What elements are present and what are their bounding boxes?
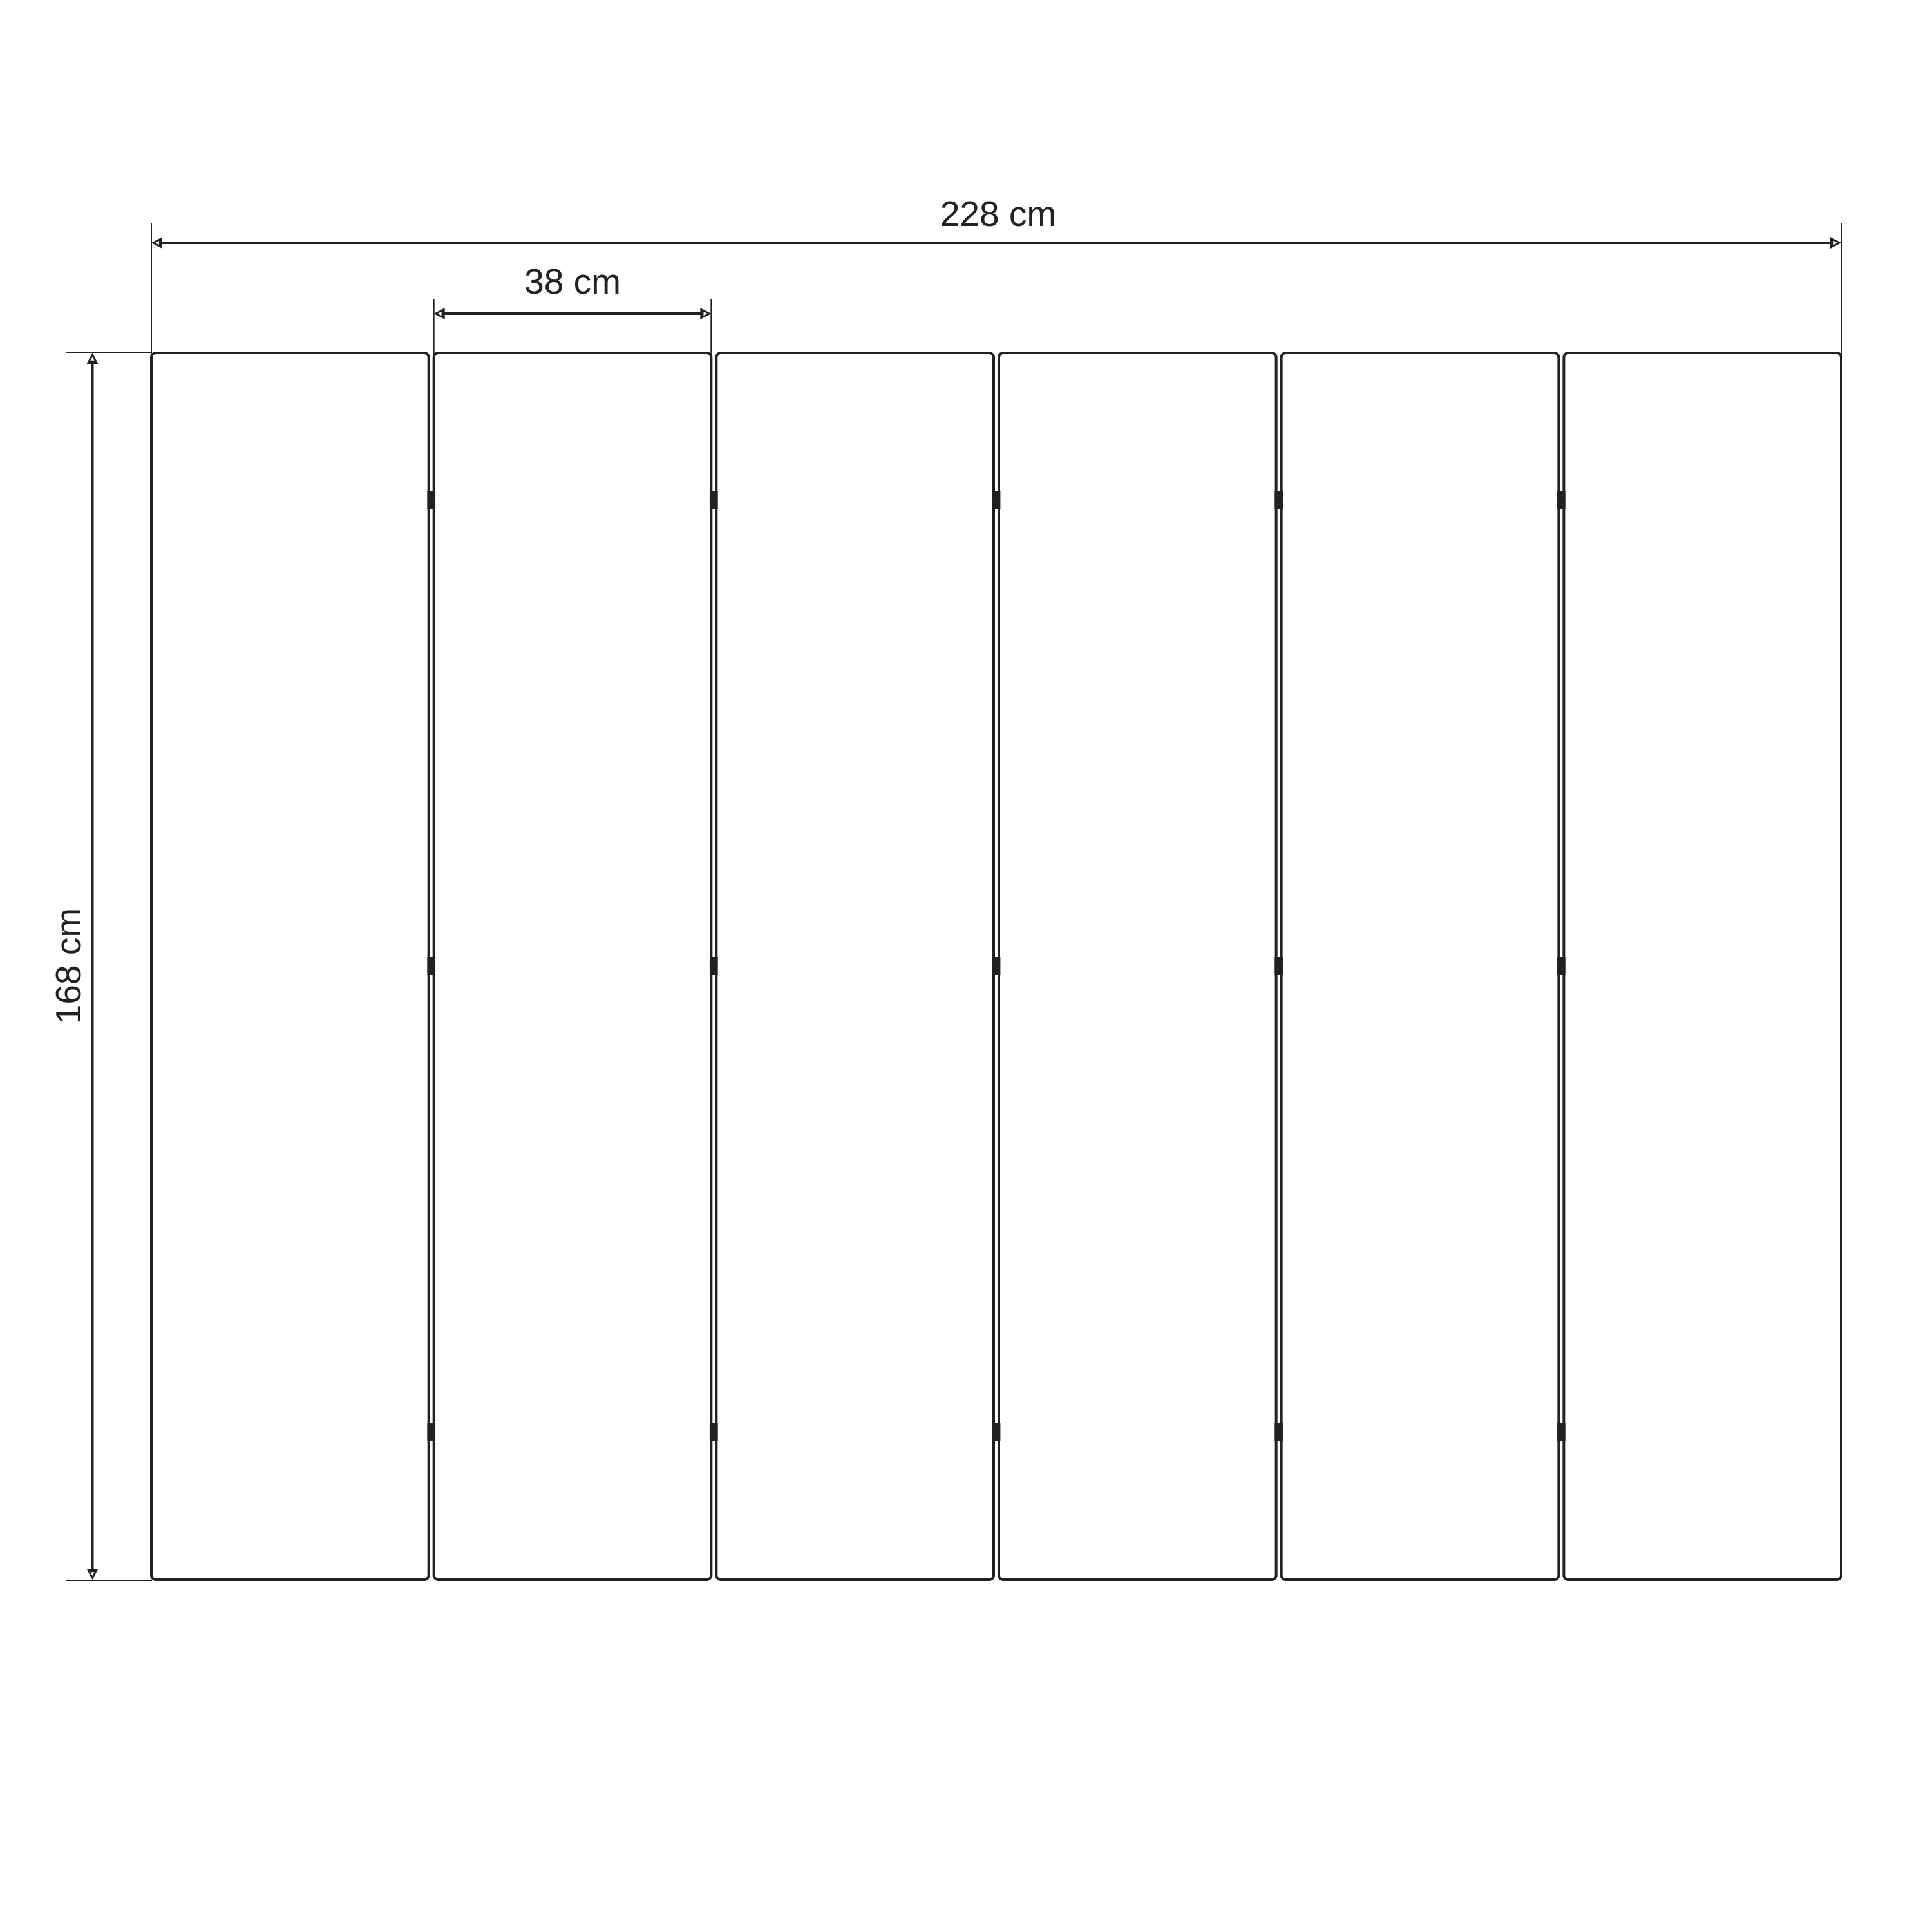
svg-text:168 cm: 168 cm [48, 908, 88, 1024]
svg-text:228 cm: 228 cm [940, 194, 1056, 234]
svg-text:38 cm: 38 cm [524, 261, 621, 301]
